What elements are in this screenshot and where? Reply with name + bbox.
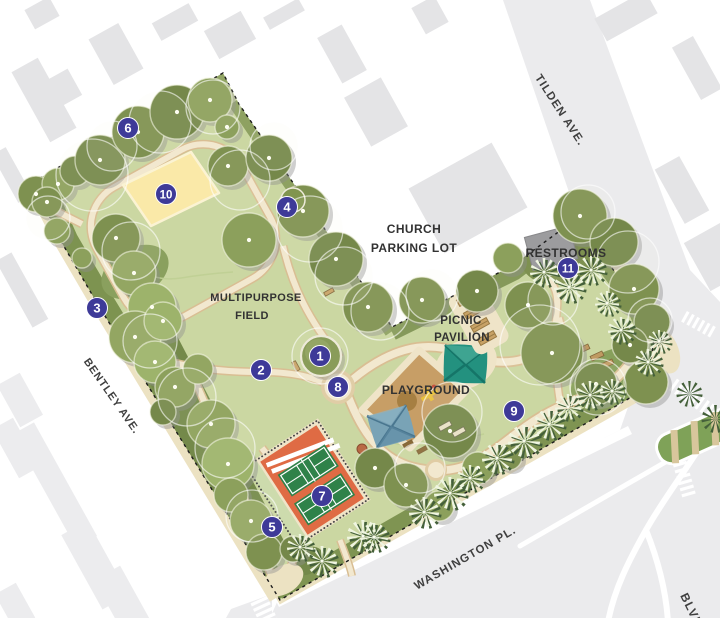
svg-text:PAVILION: PAVILION — [434, 332, 490, 344]
svg-text:9: 9 — [510, 404, 517, 419]
svg-text:11: 11 — [562, 264, 575, 276]
svg-text:MULTIPURPOSE: MULTIPURPOSE — [210, 292, 301, 304]
svg-text:FIELD: FIELD — [235, 310, 269, 322]
svg-text:5: 5 — [268, 520, 275, 535]
svg-text:PLAYGROUND: PLAYGROUND — [382, 383, 470, 397]
svg-text:2: 2 — [257, 363, 264, 378]
svg-text:6: 6 — [124, 121, 131, 136]
svg-text:3: 3 — [93, 301, 100, 316]
svg-text:10: 10 — [160, 190, 173, 202]
svg-text:4: 4 — [283, 200, 291, 215]
svg-text:PICNIC: PICNIC — [440, 315, 481, 327]
svg-text:1: 1 — [316, 349, 323, 364]
svg-text:CHURCH: CHURCH — [387, 222, 441, 236]
svg-text:8: 8 — [334, 380, 341, 395]
svg-text:7: 7 — [318, 489, 325, 504]
svg-text:PARKING LOT: PARKING LOT — [371, 241, 457, 255]
